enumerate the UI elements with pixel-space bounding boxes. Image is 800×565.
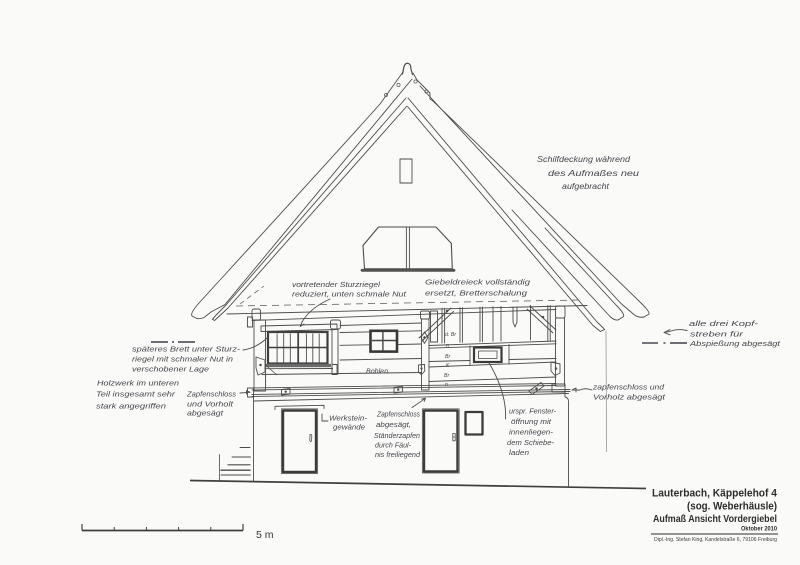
svg-text:urspr. Fenster-: urspr. Fenster- [509,407,556,416]
svg-text:streben für: streben für [690,330,744,339]
svg-text:dem Schiebe-: dem Schiebe- [507,438,554,447]
svg-text:späteres Brett unter Sturz-: späteres Brett unter Sturz- [132,345,241,354]
svg-text:Dipl.-Ing. Stefan King, Kandel: Dipl.-Ing. Stefan King, Kandelstraße 6, … [654,537,777,543]
svg-text:Bohlen: Bohlen [366,367,388,376]
svg-text:und Vorholt: und Vorholt [187,400,234,409]
svg-text:Schilfdeckung während: Schilfdeckung während [537,155,631,164]
svg-text:K: K [446,363,450,369]
svg-text:Vorholz abgesägt: Vorholz abgesägt [593,393,666,402]
svg-text:Abspießung abgesägt: Abspießung abgesägt [689,339,781,348]
svg-text:Ständerzapfen: Ständerzapfen [374,431,420,440]
svg-text:Zapfenschloss: Zapfenschloss [376,410,420,419]
svg-text:vortretender Sturzriegel: vortretender Sturzriegel [292,280,380,289]
svg-text:stark angegriffen: stark angegriffen [96,402,166,411]
svg-text:laden: laden [509,448,529,457]
svg-text:Teil insgesamt sehr: Teil insgesamt sehr [96,390,176,399]
svg-text:gewände: gewände [333,423,365,432]
svg-text:zapfenschloss und: zapfenschloss und [592,383,665,392]
svg-text:(sog. Weberhäusle): (sog. Weberhäusle) [687,501,777,513]
svg-text:abgesägt: abgesägt [187,409,224,418]
svg-text:riegel mit schmaler Nut in: riegel mit schmaler Nut in [132,355,233,364]
svg-text:5 m: 5 m [256,529,274,541]
svg-text:Holzwerk im unteren: Holzwerk im unteren [97,379,179,388]
svg-text:Lauterbach, Käppelehof 4: Lauterbach, Käppelehof 4 [652,488,778,500]
svg-text:ersetzt, Bretterschalung: ersetzt, Bretterschalung [425,289,528,298]
svg-text:aufgebracht: aufgebracht [562,182,610,191]
svg-text:verschobener Lage: verschobener Lage [132,365,209,374]
svg-text:Oktober 2010: Oktober 2010 [741,527,778,533]
svg-text:Br: Br [444,373,449,379]
svg-text:abgesägt,: abgesägt, [376,420,411,429]
svg-text:st. Br: st. Br [444,332,456,338]
svg-text:öffnung mit: öffnung mit [511,417,552,426]
svg-text:reduziert, unten schmale Nut: reduziert, unten schmale Nut [292,290,407,299]
svg-text:Br: Br [445,354,450,360]
svg-text:alle drei Kopf-: alle drei Kopf- [689,319,759,328]
svg-text:innenliegen-: innenliegen- [509,428,553,437]
svg-text:nis freiliegend: nis freiliegend [375,450,421,459]
svg-text:durch Fäul-: durch Fäul- [375,441,411,450]
svg-text:Werkstein-: Werkstein- [329,414,367,423]
svg-text:Zapfenschloss: Zapfenschloss [186,390,236,399]
svg-text:Giebeldreieck vollständig: Giebeldreieck vollständig [425,278,531,287]
svg-text:Aufmaß Ansicht Vordergiebel: Aufmaß Ansicht Vordergiebel [653,514,777,525]
svg-text:n: n [446,343,449,349]
svg-text:des Aufmaßes neu: des Aufmaßes neu [548,169,640,178]
